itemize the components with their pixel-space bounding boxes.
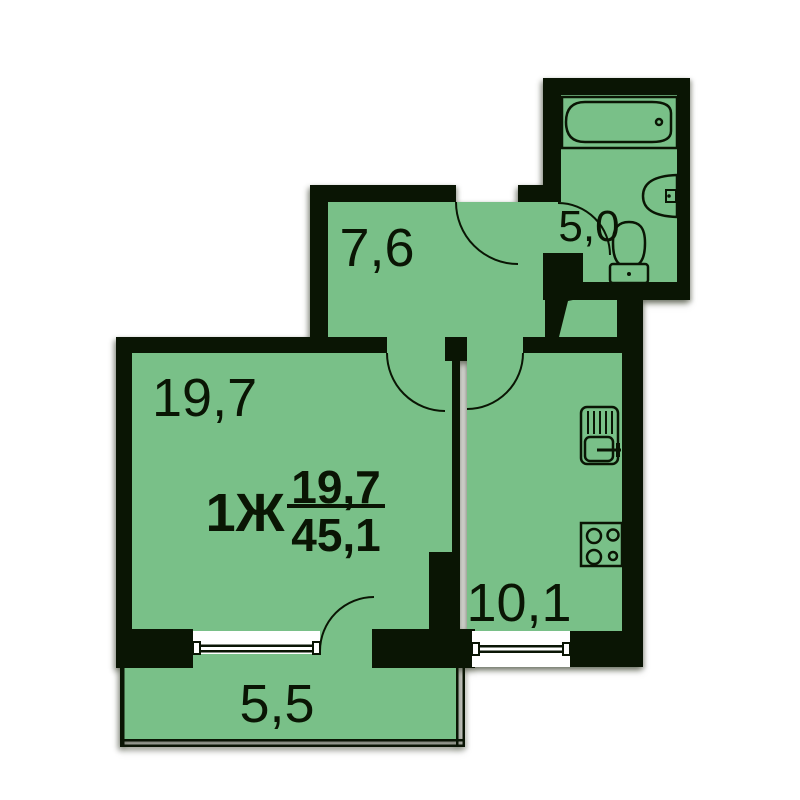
hallway-top-wall-right	[518, 185, 561, 202]
balcony-door-opening	[320, 628, 372, 656]
kitchen-area-label: 10,1	[466, 573, 571, 633]
basin-faucet-dot	[667, 194, 671, 198]
apartment-plan: 19,7 7,6 5,0 10,1 5,5 1Ж 19,7 45,1	[116, 78, 690, 747]
apartment-total-area: 45,1	[291, 509, 381, 561]
window-frame-end	[193, 642, 200, 654]
living-door-opening	[387, 336, 445, 354]
window-glass	[472, 631, 570, 667]
balcony-right-line	[456, 656, 459, 747]
living-bottom-wall-left	[116, 629, 193, 668]
kitchen-right-wall	[622, 337, 643, 667]
hallway-top-wall-left	[310, 185, 456, 202]
apartment-type-label: 1Ж	[206, 483, 286, 543]
floor-plan: 19,7 7,6 5,0 10,1 5,5 1Ж 19,7 45,1	[0, 0, 800, 800]
balcony-bottom-line	[120, 739, 465, 742]
bathroom-left-wall-lower	[543, 253, 583, 300]
living-left-wall	[116, 337, 132, 650]
stove-icon	[581, 523, 622, 566]
window-frame-line	[199, 650, 314, 653]
kitchen-door-opening	[467, 336, 523, 354]
bathroom-top-wall	[543, 78, 690, 95]
window-frame-line	[478, 651, 564, 654]
toilet-tank-dot	[627, 272, 631, 276]
sink-faucet-handle	[616, 443, 620, 457]
bathroom-right-wall	[677, 78, 690, 300]
balcony-area-label: 5,5	[239, 674, 314, 734]
bathroom-area-label: 5,0	[558, 202, 619, 251]
window-frame-end	[563, 643, 570, 655]
window-frame-line	[199, 645, 314, 648]
balcony-right-line	[463, 656, 466, 747]
window-frame-line	[478, 645, 564, 648]
living-kitchen-wall-thick	[429, 552, 460, 631]
hallway-left-wall	[310, 185, 328, 353]
window-frame-end	[472, 643, 479, 655]
balcony-left-line	[120, 650, 125, 747]
hallway-area-label: 7,6	[339, 218, 414, 278]
bathroom-left-wall-upper	[543, 78, 561, 202]
living-top-wall	[116, 337, 387, 353]
balcony-bottom-line	[120, 745, 465, 748]
kitchen-window	[472, 631, 570, 667]
window-frame-end	[313, 642, 320, 654]
living-room-window	[193, 631, 320, 654]
kitchen-bottom-wall-left	[429, 631, 472, 667]
living-kitchen-wall-thin	[452, 353, 460, 562]
kitchen-bottom-wall-right	[570, 631, 643, 667]
living-room-area-label: 19,7	[152, 368, 257, 428]
area-fraction-divider	[287, 504, 385, 508]
